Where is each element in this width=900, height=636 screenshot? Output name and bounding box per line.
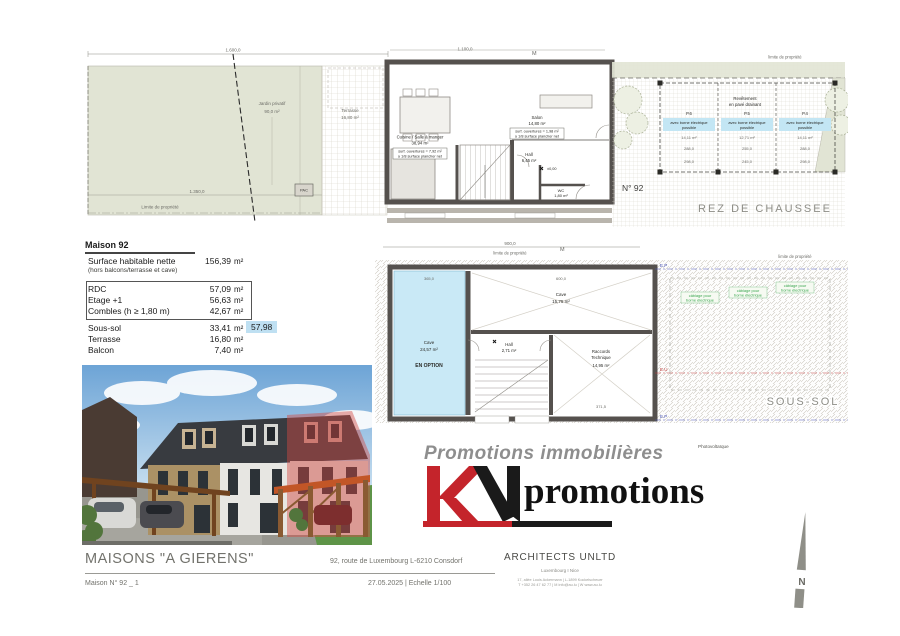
parking-stall-note2: possible bbox=[740, 125, 754, 130]
cable-label-line2: borne électrique bbox=[686, 298, 714, 303]
date-and-scale: 27.05.2025 | Echelle 1/100 bbox=[368, 580, 451, 587]
north-label: N bbox=[798, 577, 805, 588]
logo-tagline: Promotions immobilières bbox=[424, 443, 664, 465]
row-unit: m² bbox=[231, 346, 248, 355]
soussol-hall-area: 2,71 m² bbox=[502, 348, 517, 353]
soussol-floor-plan: 900,0 limite de propriété M limite de pr… bbox=[375, 240, 848, 426]
table-row: Combles (h ≥ 1,80 m)42,67m² bbox=[88, 306, 258, 316]
kn-logo-icon bbox=[427, 466, 521, 522]
table-note: (hors balcons/terrasse et cave) bbox=[88, 267, 177, 274]
parking-stall-dim2: 298,0 bbox=[684, 159, 695, 164]
row-label: Sous-sol bbox=[88, 323, 193, 333]
soussol-dim-371: 371,5 bbox=[596, 404, 607, 409]
architect-address-line: 17, allée Louis Ackermann | L-1899 Kocke… bbox=[495, 578, 625, 582]
table-row: Etage +156,63m² bbox=[88, 295, 258, 305]
row-label: RDC bbox=[88, 284, 193, 294]
table-row: Balcon7,40m² bbox=[88, 345, 258, 355]
row-label: Surface habitable nette bbox=[88, 256, 193, 266]
row-value: 7,40 bbox=[193, 345, 231, 355]
parking-stall-dim2: 245,0 bbox=[742, 159, 753, 164]
paving-label2: en pavé drainant bbox=[729, 102, 762, 107]
salon-note1: surf. ouvertures = 1,98 m² bbox=[515, 130, 559, 134]
row-unit: m² bbox=[231, 285, 248, 294]
parking-stall-area: 14,11 m² bbox=[797, 135, 813, 140]
row-value: 33,41 bbox=[193, 323, 231, 333]
row-label: Balcon bbox=[88, 345, 193, 355]
plan-document-page: 1.600,0 Jardin privatif 90,0 m² 1.350,0 … bbox=[0, 0, 900, 636]
row-value: 57,09 bbox=[193, 284, 231, 294]
row-value: 156,39 bbox=[193, 256, 231, 266]
architect-contact-line: T +352 26 47 62 77 | M info@au.lu | W ww… bbox=[495, 583, 625, 587]
rdc-marker-m: M bbox=[532, 51, 537, 57]
surface-table-title: Maison 92 bbox=[85, 240, 195, 254]
soussol-plan-title: SOUS-SOL bbox=[767, 396, 840, 408]
parking-stall-dim2: 298,0 bbox=[800, 159, 811, 164]
logo-tagline-text: Promotions immobilières bbox=[424, 443, 664, 464]
row-value: 56,63 bbox=[193, 295, 231, 305]
parking-stall-id: P.5 bbox=[744, 111, 750, 116]
soussol-dim-365: 365,0 bbox=[424, 276, 435, 281]
drive-limit-label: limite de propriété bbox=[768, 55, 802, 60]
photovoltaique-note: Photovoltaïque bbox=[698, 444, 729, 449]
parking-stall-id: P.4 bbox=[802, 111, 808, 116]
parking-stall-dim1: 288,0 bbox=[684, 146, 695, 151]
soussol-dim-900: 900,0 bbox=[504, 241, 516, 246]
rdc-dim-1350: 1.350,0 bbox=[189, 189, 205, 194]
row-value: 42,67 bbox=[193, 306, 231, 316]
cave-option-tag: EN OPTION bbox=[415, 363, 443, 369]
table-row: Terrasse16,80m² bbox=[88, 334, 258, 344]
paving-label1: Revêtement bbox=[733, 96, 757, 101]
parking-stall-note2: possible bbox=[682, 125, 696, 130]
soussol-hall-label: Hall bbox=[505, 342, 512, 347]
cave2-area: 15,75 m² bbox=[552, 299, 570, 304]
row-label: Terrasse bbox=[88, 334, 193, 344]
ep-line-label: E.P bbox=[660, 414, 667, 419]
cable-label-line2: borne électrique bbox=[781, 288, 809, 293]
cuisine-label: Cuisine / Salle à manger bbox=[397, 135, 444, 140]
table-row: Surface habitable nette156,39m² bbox=[88, 256, 258, 266]
soussol-limit-right: limite de propriété bbox=[778, 254, 812, 259]
cave-option-label: Cave bbox=[424, 340, 435, 345]
rdc-plan-title: REZ DE CHAUSSEE bbox=[698, 203, 832, 215]
architect-block: ARCHITECTS UNLTD Luxembourg I Nice 17, a… bbox=[495, 552, 625, 587]
soussol-marker-m: M bbox=[560, 247, 565, 253]
render-image bbox=[82, 365, 372, 545]
salon-area: 14,80 m² bbox=[529, 121, 547, 126]
hall-label: Hall bbox=[525, 152, 532, 157]
logo-bar-red bbox=[423, 521, 512, 527]
rdc-floor-plan: 1.600,0 Jardin privatif 90,0 m² 1.350,0 … bbox=[85, 45, 848, 233]
project-title: MAISONS "A GIERENS" bbox=[85, 551, 254, 567]
row-label: Etage +1 bbox=[88, 295, 193, 305]
row-unit: m² bbox=[231, 307, 248, 316]
architect-subtitle: Luxembourg I Nice bbox=[495, 568, 625, 573]
row-unit: m² bbox=[231, 335, 248, 344]
rdc-dim-1600: 1.600,0 bbox=[225, 48, 241, 53]
row-value: 16,80 bbox=[193, 334, 231, 344]
parking-stall-id: P.6 bbox=[686, 111, 692, 116]
cuisine-note2: ≥ 1/8 surface plancher net bbox=[398, 154, 443, 158]
logo-brand-text: promotions bbox=[524, 470, 704, 513]
row-unit: m² bbox=[231, 257, 248, 266]
row-label: Combles (h ≥ 1,80 m) bbox=[88, 306, 193, 316]
wc-area: 1,80 m² bbox=[554, 193, 568, 198]
cave2-label: Cave bbox=[556, 292, 567, 297]
technique-label1: Raccords bbox=[592, 349, 610, 354]
soussol-dim-600: 600,0 bbox=[556, 276, 567, 281]
salon-label: Salon bbox=[532, 115, 544, 120]
table-row: Sous-sol33,41m² bbox=[88, 323, 258, 333]
salon-note2: ≥ 1/8 surface plancher net bbox=[515, 134, 560, 138]
cave-option-area: 24,57 m² bbox=[420, 347, 438, 352]
parking-stall-note2: possible bbox=[798, 125, 812, 130]
logo-bar-black bbox=[512, 521, 612, 527]
architect-name: ARCHITECTS UNLTD bbox=[495, 552, 625, 563]
cuisine-area: 38,94 m² bbox=[412, 141, 430, 146]
soussol-limit-top: limite de propriété bbox=[493, 251, 527, 256]
parking-stall-dim1: 288,0 bbox=[800, 146, 811, 151]
garden-area: 90,0 m² bbox=[264, 109, 280, 114]
ep-line-label: E.P bbox=[660, 263, 667, 268]
terrace-label: Terrasse bbox=[341, 108, 359, 113]
technique-area: 14,95 m² bbox=[593, 363, 611, 368]
parking-stall-dim1: 255,0 bbox=[742, 146, 753, 151]
table-row: RDC57,09m² bbox=[88, 284, 258, 294]
soussol-highlight-value: 57,98 bbox=[246, 321, 277, 333]
garden-limit-label: Limite de propriété bbox=[141, 205, 179, 210]
plan-reference: Maison N° 92 _ 1 bbox=[85, 580, 139, 587]
terrace-area: 16,80 m² bbox=[341, 115, 359, 120]
north-arrow-icon: N bbox=[789, 512, 815, 608]
level-marker: ±0,00 bbox=[547, 167, 556, 171]
pac-label: PAC bbox=[300, 188, 308, 193]
surface-table: Maison 92 bbox=[85, 240, 285, 254]
cuisine-note1: surf. ouvertures = 7,92 m² bbox=[398, 150, 442, 154]
technique-label2: Technique bbox=[591, 355, 611, 360]
parking-stall-area: 12,71 m² bbox=[739, 135, 755, 140]
eu-line-label: E.U bbox=[660, 367, 668, 372]
garden-label: Jardin privatif bbox=[259, 101, 287, 106]
hall-area: 6,45 m² bbox=[522, 158, 537, 163]
rdc-dim-1100: 1.100,0 bbox=[457, 47, 473, 52]
house-number-label: N° 92 bbox=[622, 183, 644, 193]
row-unit: m² bbox=[231, 296, 248, 305]
project-address: 92, route de Luxembourg L-6210 Consdorf bbox=[330, 558, 462, 565]
footer-divider bbox=[85, 573, 495, 574]
cable-label-line2: borne électrique bbox=[734, 293, 762, 298]
parking-stall-area: 14,11 m² bbox=[681, 135, 697, 140]
